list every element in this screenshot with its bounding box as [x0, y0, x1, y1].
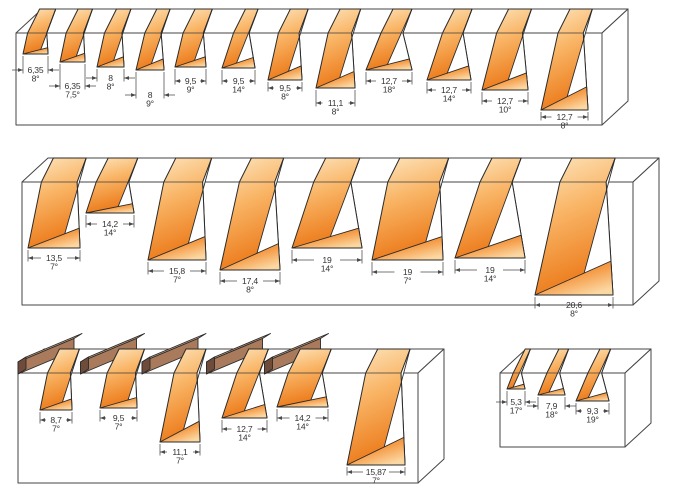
dim-angle-label: 8°: [281, 92, 289, 102]
dim-angle-label: 14°: [443, 94, 455, 104]
dim-angle-label: 14°: [232, 85, 244, 95]
dim-angle-label: 18°: [545, 410, 557, 420]
dim-angle-label: 7°: [50, 262, 58, 272]
diagram-canvas: 6,358°6,357,5°88°89°9,59°9,514°9,58°11,1…: [0, 0, 680, 503]
block-side-face: [418, 349, 444, 483]
dim-angle-label: 18°: [383, 85, 395, 95]
dim-angle-label: 14°: [104, 228, 116, 238]
block-row-4: 5,317°7,918°9,319°: [496, 349, 651, 447]
dim-angle-label: 14°: [296, 422, 308, 432]
dim-angle-label: 7°: [404, 276, 412, 286]
diagram-root: 6,358°6,357,5°88°89°9,59°9,514°9,58°11,1…: [12, 9, 659, 486]
block-row-2: 13,57°14,214°15,87°17,48°1914°197°1914°2…: [22, 158, 659, 319]
dim-angle-label: 7°: [115, 422, 123, 432]
dim-angle-label: 7,5°: [65, 90, 80, 100]
dim-angle-label: 7°: [176, 456, 184, 466]
dim-angle-label: 17°: [510, 406, 522, 416]
dim-angle-label: 14°: [321, 264, 333, 274]
dim-angle-label: 9°: [187, 85, 195, 95]
block-row-1: 6,358°6,357,5°88°89°9,59°9,514°9,58°11,1…: [12, 9, 628, 131]
dim-angle-label: 8°: [107, 82, 115, 92]
dim-angle-label: 8°: [246, 285, 254, 295]
dim-angle-label: 7°: [173, 275, 181, 285]
block-row-3: 8,77°9,57°11,17°12,714°14,214°15,877°: [18, 334, 444, 486]
diagram: 6,358°6,357,5°88°89°9,59°9,514°9,58°11,1…: [0, 0, 680, 503]
dim-angle-label: 8°: [561, 121, 569, 131]
dim-angle-label: 14°: [484, 274, 496, 284]
dim-angle-label: 7°: [52, 424, 60, 434]
dim-angle-label: 7°: [372, 476, 380, 486]
dim-angle-label: 14°: [238, 433, 250, 443]
dim-angle-label: 8°: [332, 107, 340, 117]
dim-angle-label: 8°: [32, 74, 40, 84]
dim-angle-label: 8°: [570, 309, 578, 319]
block-side-face: [633, 158, 659, 305]
dim-angle-label: 10°: [499, 105, 511, 115]
dim-angle-label: 19°: [586, 415, 598, 425]
dim-angle-label: 9°: [146, 99, 154, 109]
